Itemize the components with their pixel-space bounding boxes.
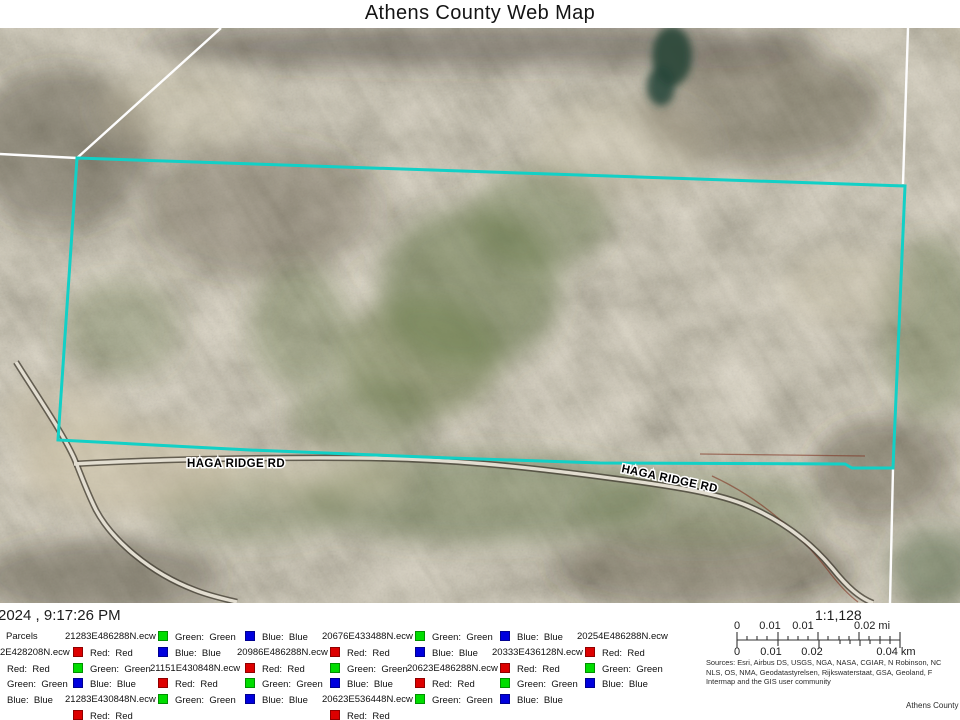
- red-band-swatch-icon: [330, 647, 340, 657]
- map-viewport[interactable]: HAGA RIDGE RD HAGA RIDGE RD: [0, 28, 960, 603]
- legend-band-entry: Blue: Blue: [0, 694, 53, 708]
- legend-band-label: Blue: Blue: [432, 648, 478, 659]
- legend-band-entry: Green: Green: [407, 694, 493, 708]
- legend-band-entry: Blue: Blue: [492, 694, 563, 708]
- legend-band-entry: Green: Green: [577, 663, 663, 677]
- legend-band-label: Blue: Blue: [90, 679, 136, 690]
- legend-band-entry: Blue: Blue: [150, 647, 221, 661]
- legend-band-entry: Blue: Blue: [577, 678, 648, 692]
- legend-band-label: Red: Red: [517, 664, 560, 675]
- legend-layer-name: 21283E430848N.ecw: [65, 694, 156, 705]
- blue-band-swatch-icon: [330, 678, 340, 688]
- legend-band-label: Blue: Blue: [262, 632, 308, 643]
- legend-layer-title: 20623E536448N.ecw: [322, 694, 413, 708]
- legend-band-entry: Red: Red: [492, 663, 560, 677]
- green-band-swatch-icon: [245, 678, 255, 688]
- legend-band-label: Blue: Blue: [517, 632, 563, 643]
- legend-band-entry: Blue: Blue: [407, 647, 478, 661]
- legend-band-entry: Red: Red: [65, 710, 133, 720]
- green-band-swatch-icon: [73, 663, 83, 673]
- legend-layer-name: 20623E536448N.ecw: [322, 694, 413, 705]
- red-band-swatch-icon: [585, 647, 595, 657]
- legend-band-entry: Blue: Blue: [322, 678, 393, 692]
- legend-band-entry: Blue: Blue: [237, 694, 308, 708]
- legend-band-label: Red: Red: [175, 679, 218, 690]
- green-band-swatch-icon: [158, 694, 168, 704]
- legend-band-entry: Red: Red: [150, 678, 218, 692]
- legend-layer-title: 21283E430848N.ecw: [65, 694, 156, 708]
- blue-band-swatch-icon: [245, 631, 255, 641]
- legend-layer-name: 20986E486288N.ecw: [237, 647, 328, 658]
- legend-band-label: Red: Red: [7, 664, 50, 675]
- legend-band-entry: Green: Green: [492, 678, 578, 692]
- blue-band-swatch-icon: [158, 647, 168, 657]
- legend-band-label: Green: Green: [432, 695, 493, 706]
- footer: 2024 , 9:17:26 PM 1:1,128 0 0.01 0.01 0.…: [0, 603, 960, 720]
- legend-band-label: Blue: Blue: [602, 679, 648, 690]
- legend-layer-title: Parcels: [6, 631, 38, 645]
- blue-band-swatch-icon: [245, 694, 255, 704]
- legend-band-entry: Blue: Blue: [492, 631, 563, 645]
- legend-band-entry: Blue: Blue: [237, 631, 308, 645]
- legend-band-label: Green: Green: [175, 632, 236, 643]
- legend-layer-name: 20676E433488N.ecw: [322, 631, 413, 642]
- legend-layer-title: 2E428208N.ecw: [0, 647, 70, 661]
- red-band-swatch-icon: [245, 663, 255, 673]
- legend-band-label: Red: Red: [347, 711, 390, 720]
- legend-band-label: Green: Green: [347, 664, 408, 675]
- red-band-swatch-icon: [73, 647, 83, 657]
- legend-layer-title: 20333E436128N.ecw: [492, 647, 583, 661]
- legend-band-entry: Green: Green: [322, 663, 408, 677]
- legend-band-entry: Red: Red: [407, 678, 475, 692]
- print-timestamp: 2024 , 9:17:26 PM: [0, 607, 121, 624]
- red-band-swatch-icon: [330, 710, 340, 720]
- legend-band-label: Green: Green: [262, 679, 323, 690]
- legend-layer-title: 21151E430848N.ecw: [150, 663, 240, 677]
- green-band-swatch-icon: [585, 663, 595, 673]
- legend-band-label: Blue: Blue: [262, 695, 308, 706]
- legend-band-label: Green: Green: [90, 664, 151, 675]
- legend-band-label: Blue: Blue: [517, 695, 563, 706]
- legend-band-label: Green: Green: [517, 679, 578, 690]
- legend-band-entry: Red: Red: [0, 663, 50, 677]
- legend-band-label: Red: Red: [90, 648, 133, 659]
- legend-band-label: Red: Red: [602, 648, 645, 659]
- legend-layer-name: 20623E486288N.ecw: [407, 663, 498, 674]
- red-band-swatch-icon: [415, 678, 425, 688]
- legend-band-label: Blue: Blue: [175, 648, 221, 659]
- legend-band-entry: Green: Green: [150, 694, 236, 708]
- header: Athens County Web Map: [0, 0, 960, 28]
- blue-band-swatch-icon: [415, 647, 425, 657]
- legend-layer-title: 21283E486288N.ecw: [65, 631, 156, 645]
- green-band-swatch-icon: [415, 631, 425, 641]
- green-band-swatch-icon: [500, 678, 510, 688]
- blue-band-swatch-icon: [585, 678, 595, 688]
- legend-band-entry: Green: Green: [65, 663, 151, 677]
- legend-band-label: Green: Green: [432, 632, 493, 643]
- legend-layer-title: 20623E486288N.ecw: [407, 663, 498, 677]
- legend-layer-title: 20254E486288N.ecw: [577, 631, 668, 645]
- red-band-swatch-icon: [73, 710, 83, 720]
- legend-layer-name: 21283E486288N.ecw: [65, 631, 156, 642]
- blue-band-swatch-icon: [73, 678, 83, 688]
- legend-band-entry: Green: Green: [0, 678, 68, 692]
- page: Athens County Web Map: [0, 0, 960, 720]
- red-band-swatch-icon: [500, 663, 510, 673]
- legend-band-entry: Red: Red: [322, 647, 390, 661]
- blue-band-swatch-icon: [500, 631, 510, 641]
- legend-band-label: Red: Red: [432, 679, 475, 690]
- road-label: HAGA RIDGE RD: [187, 458, 285, 470]
- legend-layer-name: 21151E430848N.ecw: [150, 663, 240, 674]
- legend-band-entry: Red: Red: [577, 647, 645, 661]
- legend-band-entry: Red: Red: [237, 663, 305, 677]
- green-band-swatch-icon: [158, 631, 168, 641]
- legend-layer-name: 20333E436128N.ecw: [492, 647, 583, 658]
- legend-band-label: Blue: Blue: [347, 679, 393, 690]
- legend-band-entry: Green: Green: [237, 678, 323, 692]
- legend-band-label: Green: Green: [602, 664, 663, 675]
- legend-layer-name: 2E428208N.ecw: [0, 647, 70, 658]
- legend-band-label: Green: Green: [175, 695, 236, 706]
- legend-layer-name: 20254E486288N.ecw: [577, 631, 668, 642]
- legend-layer-name: Parcels: [6, 631, 38, 642]
- legend-band-label: Blue: Blue: [7, 695, 53, 706]
- legend-band-label: Green: Green: [7, 679, 68, 690]
- legend-band-entry: Green: Green: [150, 631, 236, 645]
- red-band-swatch-icon: [158, 678, 168, 688]
- legend-layer-title: 20676E433488N.ecw: [322, 631, 413, 645]
- legend-band-entry: Red: Red: [322, 710, 390, 720]
- blue-band-swatch-icon: [500, 694, 510, 704]
- aerial-imagery: HAGA RIDGE RD HAGA RIDGE RD: [0, 28, 960, 603]
- legend-band-entry: Green: Green: [407, 631, 493, 645]
- green-band-swatch-icon: [330, 663, 340, 673]
- legend-layer-title: 20986E486288N.ecw: [237, 647, 328, 661]
- page-title: Athens County Web Map: [0, 0, 960, 26]
- green-band-swatch-icon: [415, 694, 425, 704]
- legend-band-label: Red: Red: [90, 711, 133, 720]
- legend: Parcels2E428208N.ecwRed: RedGreen: Green…: [0, 631, 960, 720]
- legend-band-entry: Red: Red: [65, 647, 133, 661]
- legend-band-label: Red: Red: [347, 648, 390, 659]
- legend-band-label: Red: Red: [262, 664, 305, 675]
- legend-band-entry: Blue: Blue: [65, 678, 136, 692]
